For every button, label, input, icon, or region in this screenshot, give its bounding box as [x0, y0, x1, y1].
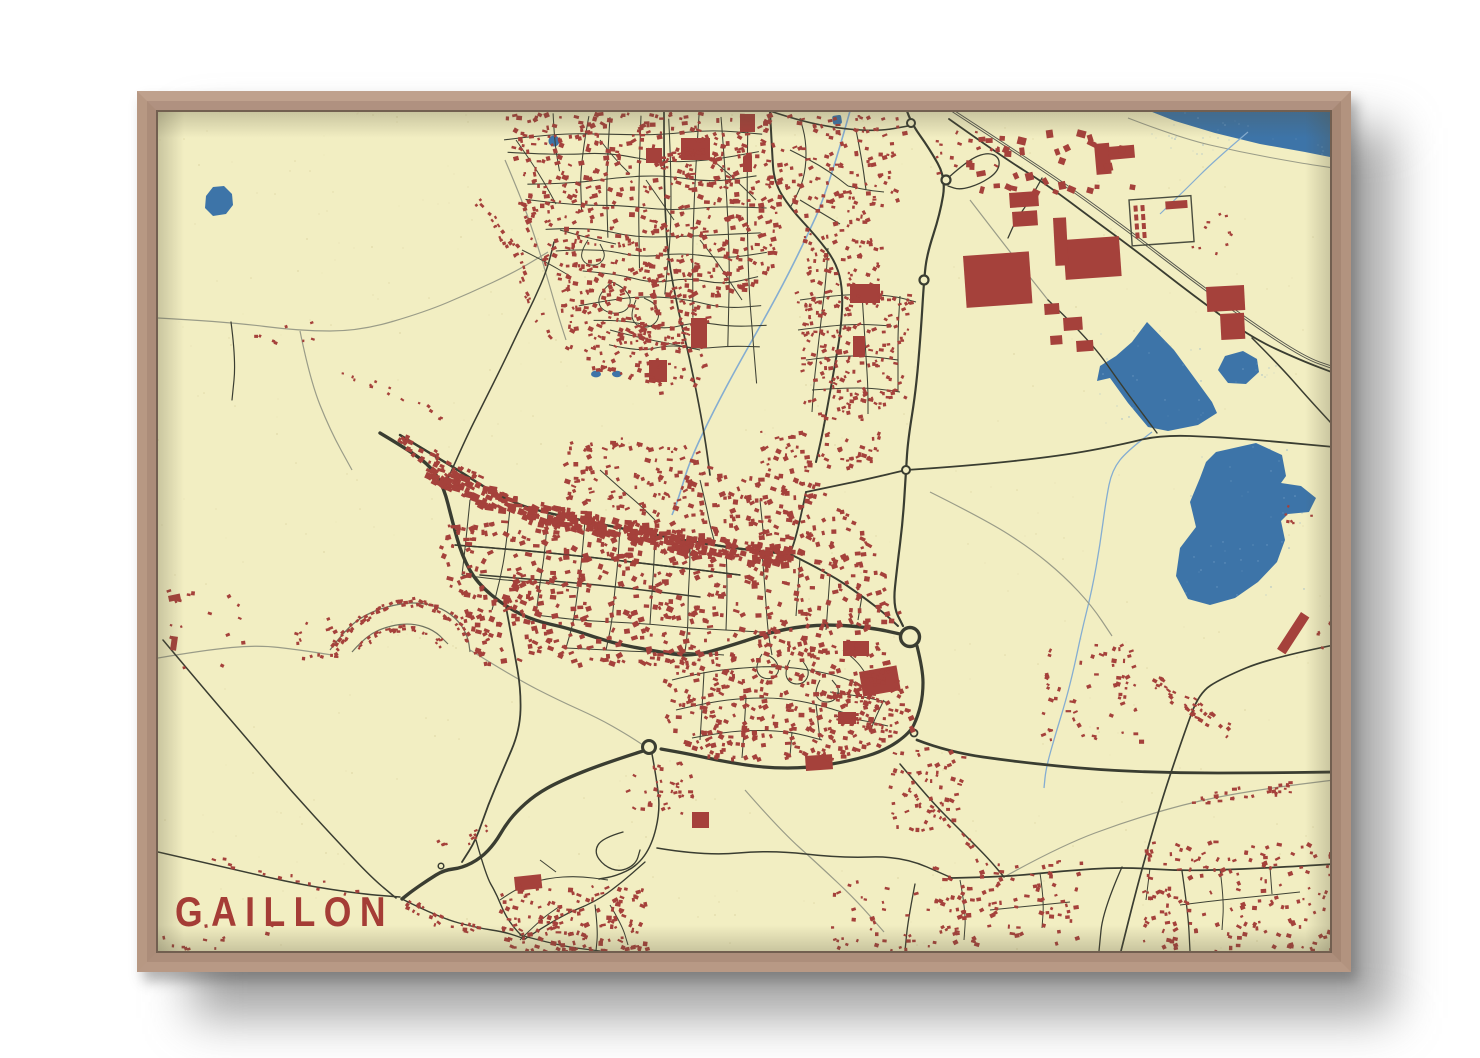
svg-text:GAILLON: GAILLON: [175, 888, 394, 935]
